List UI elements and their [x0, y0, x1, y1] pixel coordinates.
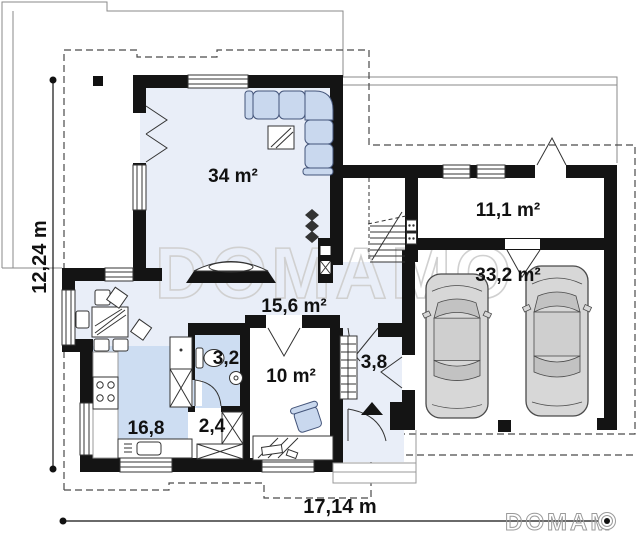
coffee-table	[268, 126, 294, 149]
garage-area-label: 33,2 m²	[475, 265, 540, 286]
window-storage-top-2	[477, 165, 505, 178]
kitchen-area-label: 16,8	[128, 418, 165, 439]
height-dimension-label: 12,24 m	[29, 220, 51, 293]
window-living-top	[188, 75, 248, 88]
living-room-area-label: 34 m²	[208, 166, 258, 187]
office-furniture	[253, 400, 333, 460]
window-storage-top-1	[443, 165, 470, 178]
closet-area-label: 2,4	[199, 416, 226, 437]
domamo-logo: DOMAM	[505, 509, 616, 536]
washbasin	[230, 372, 243, 385]
sink-bowl	[137, 442, 161, 455]
fireplace-base	[186, 271, 276, 283]
door-storage-exterior	[537, 138, 566, 165]
office-area-label: 10 m²	[266, 366, 316, 387]
floor-plan-page: DOMAMO	[0, 0, 640, 538]
stove	[93, 377, 118, 409]
vestibule-area-label: 3,8	[361, 352, 387, 373]
vestibule-wardrobe	[340, 336, 357, 399]
toilet-tank	[196, 348, 203, 368]
chimney-block	[318, 238, 333, 283]
car-2	[522, 266, 591, 416]
width-dimension-label: 17,14 m	[303, 496, 376, 518]
window-dining-top	[105, 268, 133, 281]
survey-marker	[93, 76, 103, 86]
bathroom-area-label: 3,2	[213, 348, 239, 369]
logo-target-icon	[599, 513, 616, 530]
office-chair	[290, 400, 325, 433]
car-1	[422, 274, 491, 418]
window-kitchen-left	[80, 403, 93, 455]
storage-area-label: 11,1 m²	[476, 200, 540, 221]
door-office	[268, 328, 300, 356]
floor-plan-drawing: DOMAMO	[0, 0, 640, 538]
window-living-left	[133, 165, 146, 210]
window-dining-left	[62, 290, 75, 345]
window-kitchen-bottom	[120, 458, 172, 472]
hall-area-label: 15,6 m²	[261, 296, 326, 317]
radiator-icon	[305, 209, 319, 243]
logo-text: DOMAM	[505, 509, 613, 536]
